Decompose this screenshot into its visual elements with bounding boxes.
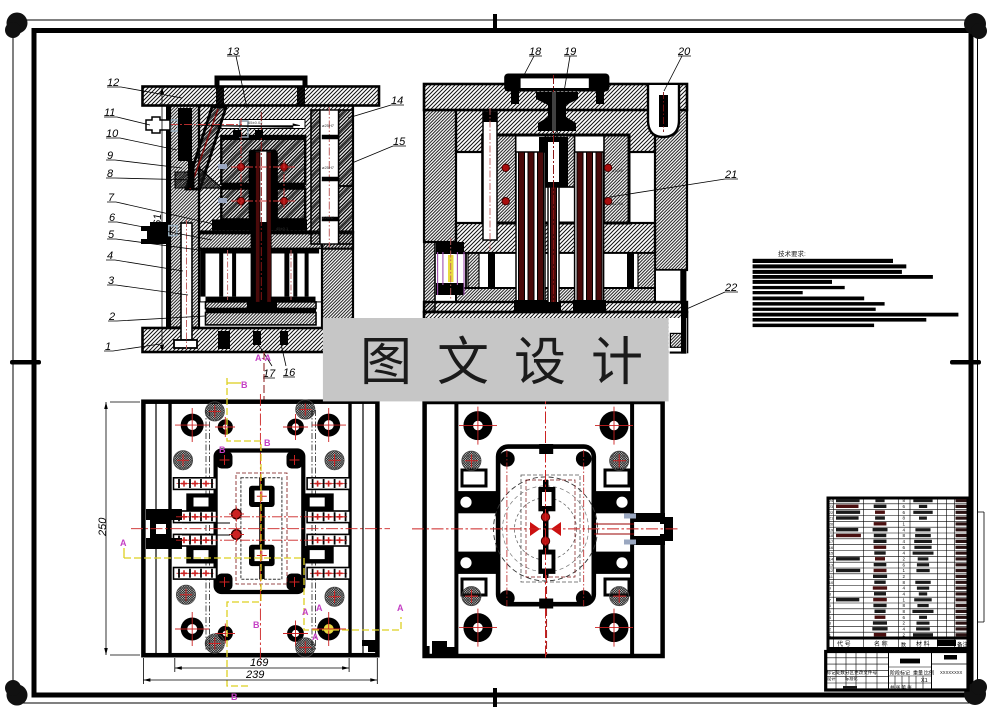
svg-text:22: 22 [829,510,834,515]
svg-text:20: 20 [829,522,834,527]
svg-text:24: 24 [829,498,834,503]
svg-text:共 张 第 张: 共 张 第 张 [890,684,912,691]
svg-text:数: 数 [901,642,906,649]
svg-text:ø12k6: ø12k6 [612,168,624,173]
svg-text:备注: 备注 [957,641,969,649]
svg-text:XXXXXXXX: XXXXXXXX [940,670,963,675]
svg-text:45±0.1: 45±0.1 [276,226,289,231]
svg-text:21: 21 [829,516,834,521]
svg-text:B: B [219,445,226,455]
svg-text:代 号: 代 号 [837,640,851,648]
svg-text:ø25H7: ø25H7 [322,123,335,128]
svg-text:65±0.02: 65±0.02 [248,120,263,125]
svg-text:14: 14 [829,557,834,562]
svg-text:重量: 重量 [913,670,923,677]
svg-text:标记处数分区更改文件号: 标记处数分区更改文件号 [827,669,878,676]
svg-text:12: 12 [829,568,834,573]
svg-text:250: 250 [97,517,109,537]
svg-text:设计: 设计 [827,675,835,682]
svg-text:B: B [264,438,271,448]
svg-text:169: 169 [250,657,268,669]
svg-text:技术要求:: 技术要求: [778,249,806,258]
svg-text:B: B [231,692,238,702]
svg-text:10: 10 [829,580,834,585]
svg-text:图文设计: 图文设计 [360,335,668,392]
svg-text:X1: X1 [921,678,928,684]
svg-text:B: B [253,620,260,630]
svg-text:15: 15 [829,551,834,556]
svg-text:材 料: 材 料 [916,640,930,648]
svg-text:A-A: A-A [255,353,271,363]
svg-text:ø12k6: ø12k6 [612,201,624,206]
svg-text:13: 13 [829,562,834,567]
svg-text:A: A [312,632,319,642]
svg-text:ø25H7: ø25H7 [322,215,335,220]
svg-text:比例: 比例 [924,670,934,677]
svg-text:A: A [316,603,323,613]
svg-text:名 称: 名 称 [874,640,888,648]
svg-text:18: 18 [829,533,834,538]
svg-text:17: 17 [829,539,834,544]
svg-text:B: B [241,380,248,390]
svg-text:23: 23 [829,504,834,509]
svg-text:阶段标记: 阶段标记 [890,670,910,677]
svg-text:239: 239 [245,669,264,681]
svg-text:A: A [120,538,127,548]
svg-text:标准化: 标准化 [845,675,858,682]
svg-text:19: 19 [829,527,834,532]
svg-text:16: 16 [829,545,834,550]
svg-text:A: A [302,607,309,617]
svg-text:A: A [397,603,404,613]
svg-text:ø25H7: ø25H7 [322,165,335,170]
